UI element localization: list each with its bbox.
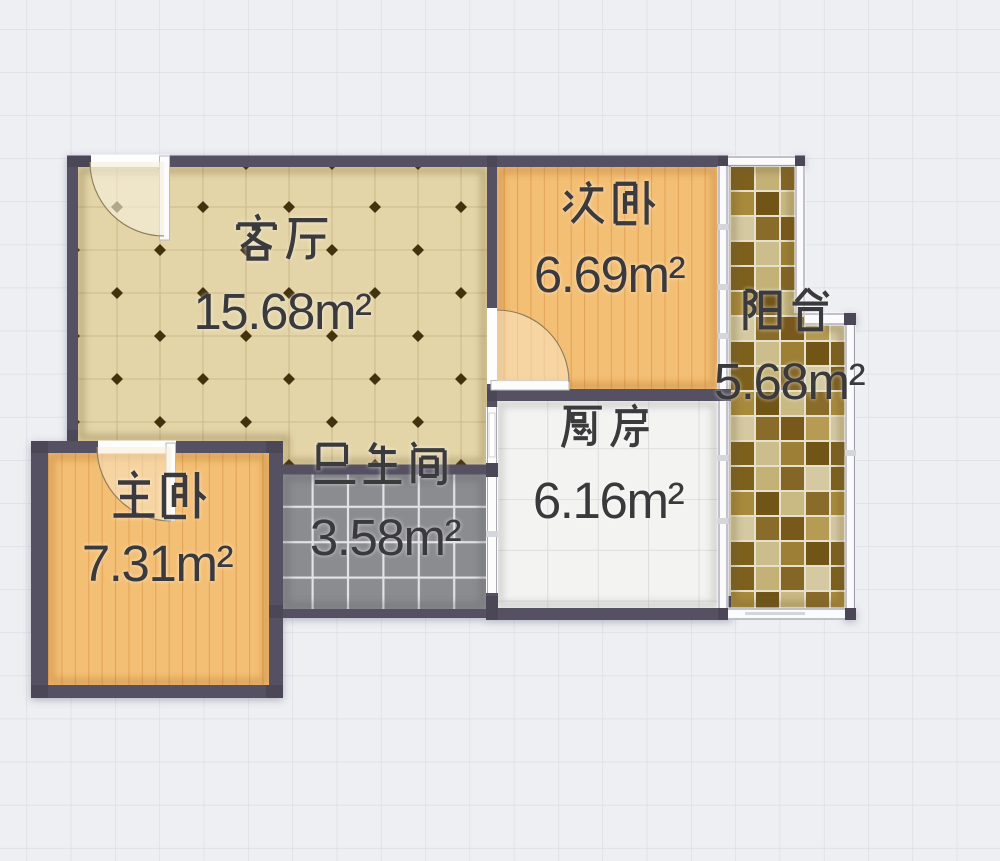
svg-text:5.68m²: 5.68m² bbox=[714, 353, 866, 410]
svg-text:15.68m²: 15.68m² bbox=[193, 283, 372, 340]
svg-text:3.58m²: 3.58m² bbox=[310, 509, 462, 566]
svg-text:7.31m²: 7.31m² bbox=[82, 535, 234, 592]
svg-text:6.16m²: 6.16m² bbox=[533, 472, 685, 529]
svg-text:6.69m²: 6.69m² bbox=[534, 246, 686, 303]
